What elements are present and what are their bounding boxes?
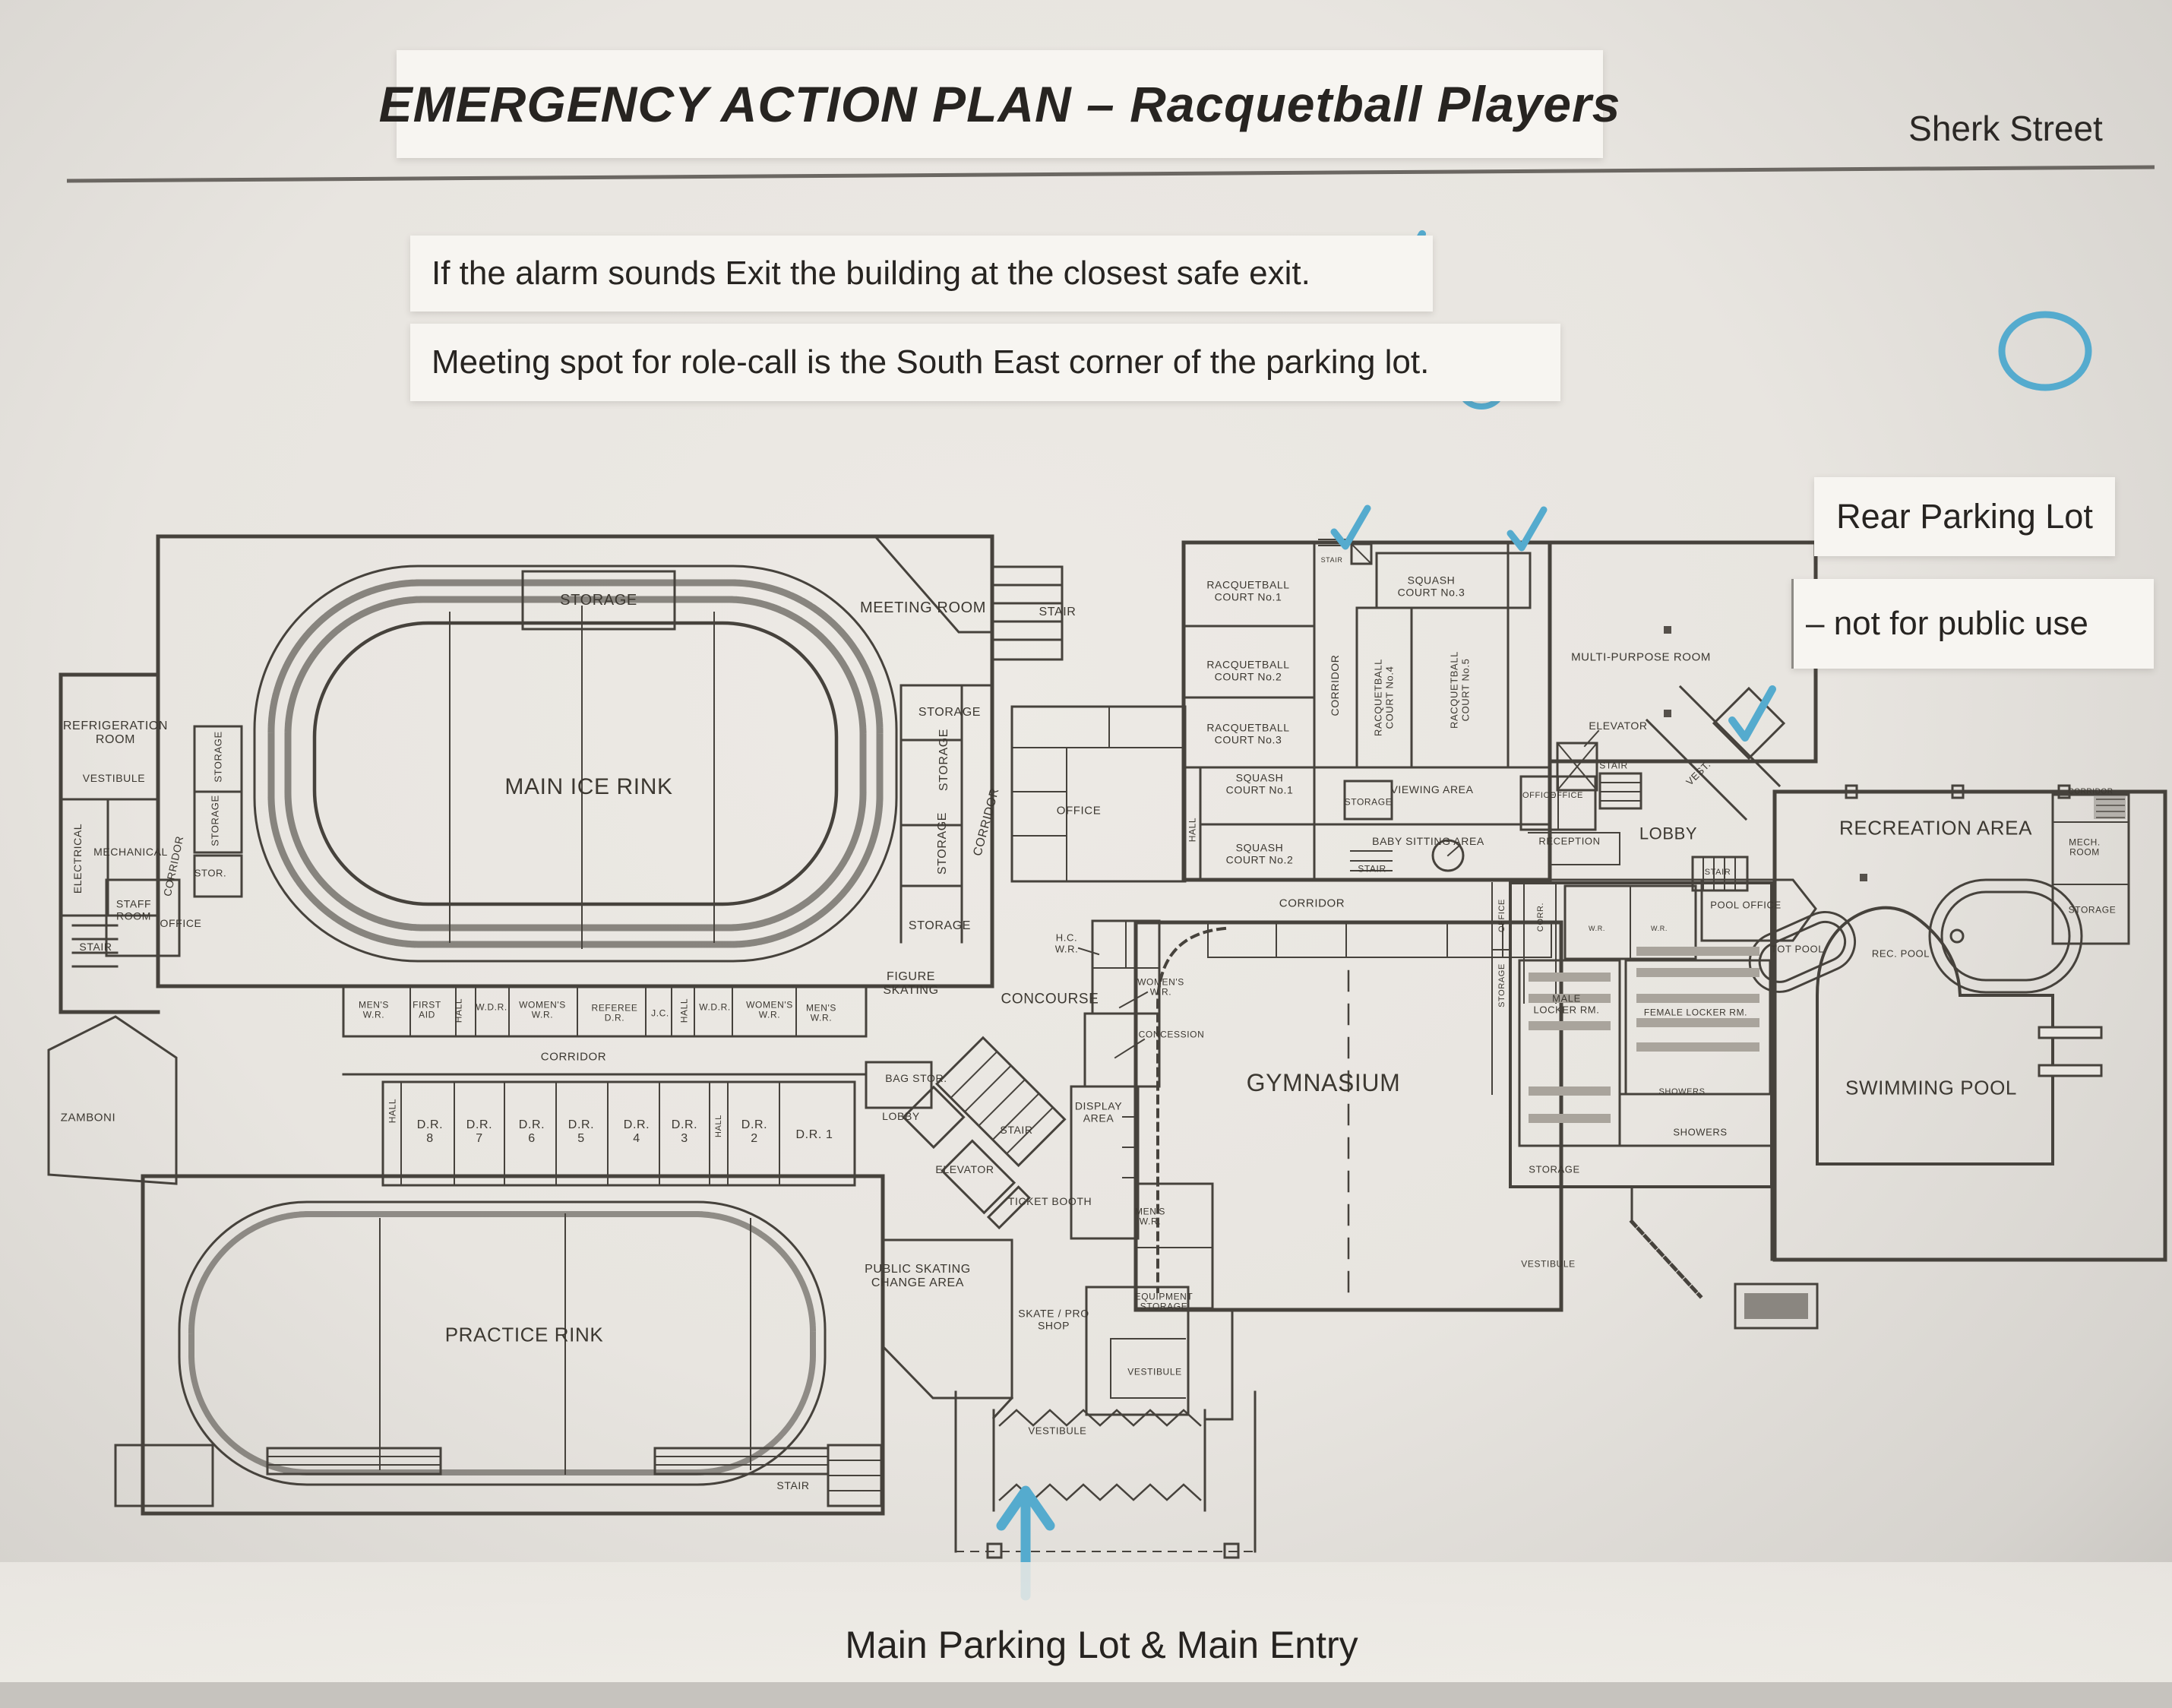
plan-room-label: STAIR bbox=[1705, 868, 1731, 877]
plan-room-label: D.R. 2 bbox=[741, 1118, 767, 1146]
plan-room-label: CONCOURSE bbox=[1001, 991, 1099, 1007]
plan-room-label: OFFICE bbox=[1550, 791, 1583, 800]
plan-room-label: CONCESSION bbox=[1139, 1030, 1205, 1039]
plan-room-label: HALL bbox=[454, 998, 463, 1023]
plan-room-label: STORAGE bbox=[560, 592, 637, 609]
plan-room-label: CORRIDOR bbox=[1279, 898, 1345, 911]
plan-room-label: HALL bbox=[387, 1099, 397, 1123]
plan-room-label: W.D.R. bbox=[699, 1002, 731, 1012]
plan-room-label: VESTIBULE bbox=[1029, 1426, 1087, 1438]
plan-room-label: H.C. W.R. bbox=[1055, 932, 1079, 954]
plan-room-label: D.R. 6 bbox=[519, 1118, 545, 1146]
plan-room-label: RACQUETBALL COURT No.4 bbox=[1373, 659, 1395, 736]
plan-room-label: VESTIBULE bbox=[1127, 1367, 1181, 1377]
plan-room-label: VESTIBULE bbox=[83, 773, 145, 785]
plan-room-label: HALL bbox=[714, 1115, 723, 1137]
plan-room-label: W.D.R. bbox=[476, 1002, 507, 1012]
plan-room-label: MAIN ICE RINK bbox=[504, 774, 672, 800]
floor-plan-labels: STORAGEMEETING ROOMSTAIRMAIN ICE RINKSTO… bbox=[0, 0, 2172, 1708]
plan-room-label: D.R. 3 bbox=[672, 1118, 697, 1146]
plan-room-label: D.R. 4 bbox=[624, 1118, 650, 1146]
plan-room-label: ELEVATOR bbox=[1589, 720, 1647, 732]
plan-room-label: CORRIDOR bbox=[1329, 654, 1342, 716]
plan-room-label: RACQUETBALL COURT No.5 bbox=[1449, 651, 1471, 729]
plan-room-label: LOBBY bbox=[882, 1111, 920, 1123]
plan-room-label: MEN'S W.R. bbox=[359, 1001, 389, 1021]
plan-room-label: STORAGE bbox=[1345, 797, 1393, 807]
plan-room-label: W.R. bbox=[1589, 925, 1605, 932]
plan-room-label: LOBBY bbox=[1639, 825, 1697, 844]
plan-room-label: CORRIDOR bbox=[162, 835, 186, 898]
plan-room-label: VIEWING AREA bbox=[1390, 784, 1473, 796]
plan-room-label: STORAGE bbox=[937, 729, 951, 791]
plan-room-label: FIRST AID bbox=[413, 1001, 441, 1021]
plan-room-label: ZAMBONI bbox=[61, 1112, 116, 1125]
plan-room-label: STORAGE bbox=[1529, 1165, 1580, 1176]
plan-room-label: W.R. bbox=[1651, 925, 1668, 932]
plan-room-label: STORAGE bbox=[213, 731, 225, 783]
plan-room-label: SHOWERS bbox=[1673, 1128, 1727, 1139]
plan-room-label: RECEPTION bbox=[1538, 837, 1600, 848]
plan-room-label: CORRIDOR bbox=[971, 786, 1002, 857]
plan-room-label: WOMEN'S W.R. bbox=[1137, 978, 1184, 998]
plan-room-label: RACQUETBALL COURT No.1 bbox=[1206, 579, 1289, 603]
plan-room-label: STORAGE bbox=[909, 919, 971, 933]
plan-room-label: MECHANICAL bbox=[93, 846, 168, 859]
plan-room-label: STAIR bbox=[776, 1480, 809, 1492]
plan-room-label: STORAGE bbox=[1497, 963, 1506, 1007]
plan-room-label: STAIR bbox=[79, 941, 112, 954]
plan-room-label: MEN'S W.R. bbox=[806, 1004, 836, 1024]
plan-room-label: D.R. 8 bbox=[417, 1118, 443, 1146]
plan-room-label: D.R. 1 bbox=[796, 1128, 833, 1142]
plan-room-label: WOMEN'S W.R. bbox=[519, 1001, 566, 1021]
plan-room-label: ELECTRICAL bbox=[72, 824, 84, 894]
plan-room-label: STAFF ROOM bbox=[116, 898, 151, 922]
plan-room-label: STAIR bbox=[1358, 864, 1386, 874]
plan-room-label: SQUASH COURT No.2 bbox=[1226, 842, 1294, 865]
plan-room-label: BABY SITTING AREA bbox=[1372, 836, 1484, 848]
plan-room-label: VEST. bbox=[1684, 759, 1713, 788]
plan-room-label: EQUIPMENT STORAGE bbox=[1135, 1292, 1193, 1313]
plan-room-label: RACQUETBALL COURT No.2 bbox=[1206, 659, 1289, 682]
plan-room-label: MEETING ROOM bbox=[860, 599, 986, 616]
plan-room-label: WOMEN'S W.R. bbox=[746, 1001, 793, 1021]
plan-room-label: MEN'S W.R. bbox=[1135, 1207, 1165, 1228]
plan-room-label: STOR. bbox=[194, 868, 227, 880]
plan-room-label: SQUASH COURT No.1 bbox=[1226, 772, 1294, 795]
plan-room-label: GYMNASIUM bbox=[1247, 1070, 1401, 1097]
plan-room-label: MULTI-PURPOSE ROOM bbox=[1571, 652, 1711, 665]
plan-room-label: STAIR bbox=[1599, 761, 1627, 770]
plan-room-label: SWIMMING POOL bbox=[1845, 1077, 2017, 1099]
photographed-emergency-plan-page: EMERGENCY ACTION PLAN – Racquetball Play… bbox=[0, 0, 2172, 1708]
plan-room-label: MECH. ROOM bbox=[2069, 838, 2101, 859]
plan-room-label: CORR. bbox=[1536, 903, 1545, 931]
plan-room-label: SKATE / PRO SHOP bbox=[1018, 1308, 1089, 1331]
plan-room-label: HALL bbox=[1187, 818, 1197, 842]
plan-room-label: OFFICE bbox=[1057, 805, 1102, 818]
plan-room-label: OFFICE bbox=[1497, 899, 1506, 932]
plan-room-label: J.C. bbox=[651, 1008, 669, 1018]
plan-room-label: PRACTICE RINK bbox=[445, 1324, 604, 1346]
plan-room-label: REC. POOL bbox=[1872, 949, 1930, 960]
plan-room-label: REFRIGERATION ROOM bbox=[63, 720, 168, 747]
plan-room-label: MALE LOCKER RM. bbox=[1534, 993, 1600, 1015]
plan-room-label: HALL bbox=[679, 998, 689, 1023]
plan-room-label: VESTIBULE bbox=[1521, 1259, 1575, 1269]
plan-room-label: CORRIDOR bbox=[541, 1052, 606, 1064]
plan-room-label: SQUASH COURT No.3 bbox=[1398, 574, 1465, 598]
plan-room-label: DISPLAY AREA bbox=[1075, 1100, 1122, 1124]
plan-room-label: STORAGE bbox=[936, 812, 950, 875]
plan-room-label: TICKET BOOTH bbox=[1008, 1196, 1092, 1208]
plan-room-label: OFFICE bbox=[160, 918, 202, 930]
plan-room-label: REFEREE D.R. bbox=[592, 1004, 638, 1024]
plan-room-label: FIGURE SKATING bbox=[883, 970, 938, 998]
plan-room-label: CORRIDOR bbox=[2068, 787, 2113, 795]
plan-room-label: PUBLIC SKATING CHANGE AREA bbox=[865, 1263, 971, 1290]
plan-room-label: RACQUETBALL COURT No.3 bbox=[1206, 722, 1289, 745]
plan-room-label: ELEVATOR bbox=[935, 1164, 994, 1176]
plan-room-label: STAIR bbox=[1321, 556, 1343, 564]
plan-room-label: SHOWERS bbox=[1658, 1087, 1705, 1096]
plan-room-label: STORAGE bbox=[210, 795, 222, 846]
plan-room-label: BAG STOR. bbox=[885, 1073, 947, 1085]
plan-room-label: STAIR bbox=[1039, 606, 1077, 619]
plan-room-label: POOL OFFICE bbox=[1710, 900, 1782, 912]
plan-room-label: STAIR bbox=[1000, 1124, 1032, 1137]
plan-room-label: D.R. 5 bbox=[568, 1118, 594, 1146]
plan-room-label: FEMALE LOCKER RM. bbox=[1644, 1007, 1747, 1017]
plan-room-label: STORAGE bbox=[2069, 905, 2117, 915]
plan-room-label: STORAGE bbox=[918, 706, 981, 720]
plan-room-label: RECREATION AREA bbox=[1839, 817, 2032, 839]
plan-room-label: D.R. 7 bbox=[466, 1118, 492, 1146]
plan-room-label: TOT POOL bbox=[1771, 944, 1824, 956]
